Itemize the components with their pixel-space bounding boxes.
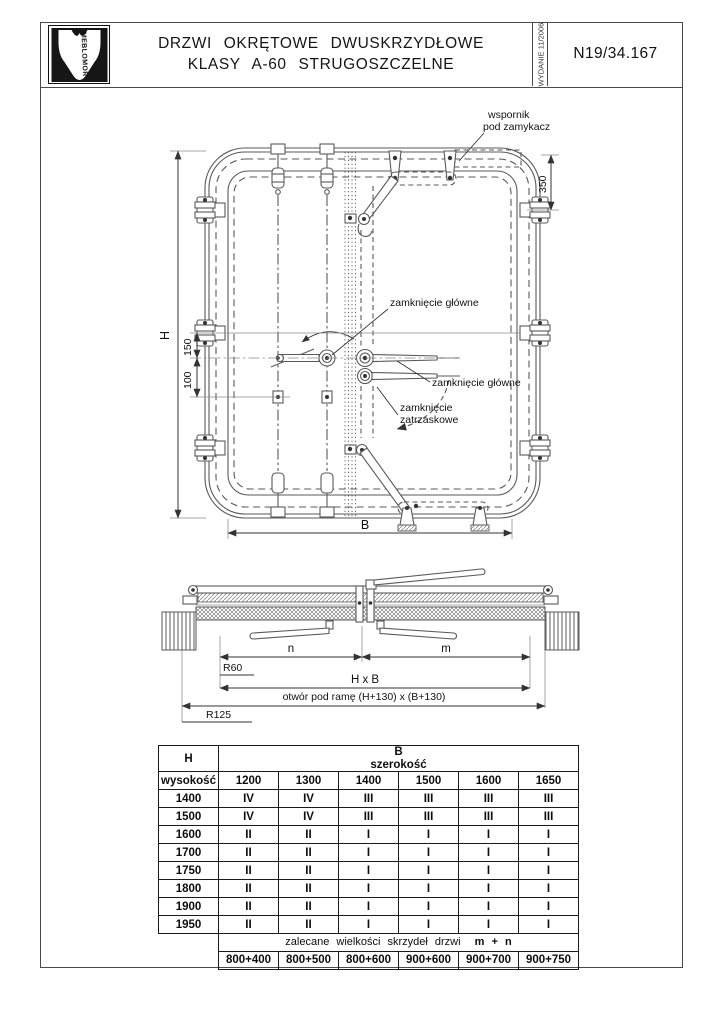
table-cell: I [339, 880, 399, 898]
technical-drawing: H 150 100 350 B wspornik pod zamykacz [40, 88, 684, 746]
table-cell: II [219, 916, 279, 934]
title-line-2: KLASY A-60 STRUGOSZCZELNE [112, 54, 530, 75]
table-cell: I [399, 898, 459, 916]
table-cell: I [519, 826, 579, 844]
dim-n-label: n [288, 643, 294, 655]
table-cell: II [219, 826, 279, 844]
table-cell: III [459, 808, 519, 826]
table-header-b-label: B [219, 746, 578, 759]
table-header-h-sub: wysokość [159, 772, 219, 790]
table-cell: II [279, 880, 339, 898]
table-cell: I [399, 826, 459, 844]
latch-lock-label-1: zamknięcie [400, 402, 453, 414]
table-header-b-sub: szerokość [219, 759, 578, 771]
table-cell: I [399, 844, 459, 862]
table-cell: IV [279, 808, 339, 826]
table-cell: III [519, 790, 579, 808]
table-cell: I [519, 880, 579, 898]
latch-lock-label-2: zatrzaskowe [400, 414, 459, 426]
front-view-dimensions: H 150 100 350 B wspornik pod zamykacz [158, 109, 559, 539]
table-row-height: 1700 [159, 844, 219, 862]
table-row-height: 1950 [159, 916, 219, 934]
table-cell: I [519, 862, 579, 880]
table-cell: I [459, 916, 519, 934]
table-row-height: 1600 [159, 826, 219, 844]
table-footer-note: zalecane wielkości skrzydeł drzwi m + n [219, 934, 579, 952]
table-cell: II [279, 862, 339, 880]
dim-150-label: 150 [182, 338, 194, 356]
locking-rods [271, 144, 334, 517]
catalog-page: { "header": { "logo_text": "MEBLOMOR", "… [0, 0, 724, 1024]
table-width-value: 1600 [459, 772, 519, 790]
logo-graphic: MEBLOMOR [51, 28, 108, 82]
table-cell: II [279, 916, 339, 934]
table-cell: III [339, 808, 399, 826]
bracket-label-2: pod zamykacz [483, 121, 550, 133]
table-cell: II [279, 826, 339, 844]
title-line-1: DRZWI OKRĘTOWE DWUSKRZYDŁOWE [112, 33, 530, 54]
table-row-height: 1400 [159, 790, 219, 808]
table-cell: I [399, 862, 459, 880]
dim-H-label: H [158, 331, 172, 340]
table-row-height: 1800 [159, 880, 219, 898]
table-width-value: 1400 [339, 772, 399, 790]
dim-hxb-label: H x B [351, 674, 379, 686]
bracket-label-1: wspornik [487, 109, 530, 121]
table-cell: I [399, 916, 459, 934]
table-cell: III [399, 808, 459, 826]
table-cell: II [219, 880, 279, 898]
table-width-value: 1500 [399, 772, 459, 790]
table-cell: II [279, 844, 339, 862]
table-cell: I [339, 898, 399, 916]
edition-strip: WYDANIE 11/2006 [532, 22, 548, 86]
table-cell: IV [219, 790, 279, 808]
table-empty-cell [159, 951, 219, 969]
table-cell: I [459, 880, 519, 898]
dim-350-label: 350 [537, 175, 549, 193]
opening-label: otwór pod ramę (H+130) x (B+130) [283, 691, 446, 703]
table-leaf-size-cell: 800+500 [279, 951, 339, 969]
table-header-h: H [159, 746, 219, 772]
table-leaf-size-cell: 800+600 [339, 951, 399, 969]
top-closer-mechanism [345, 150, 521, 346]
table-cell: I [459, 826, 519, 844]
main-lock-label-right: zamknięcie główne [432, 377, 521, 389]
document-number: N19/34.167 [548, 22, 683, 86]
table-cell: IV [279, 790, 339, 808]
table-cell: I [399, 880, 459, 898]
table-cell: I [519, 898, 579, 916]
dim-m-label: m [441, 643, 451, 655]
main-lock-label-top: zamknięcie główne [390, 297, 479, 309]
dim-100-label: 100 [182, 371, 194, 389]
table-cell: II [219, 862, 279, 880]
radius-r60-label: R60 [223, 662, 242, 674]
table-cell: I [519, 916, 579, 934]
table-cell: I [459, 898, 519, 916]
table-width-value: 1650 [519, 772, 579, 790]
table-leaf-size-cell: 900+700 [459, 951, 519, 969]
table-cell: III [339, 790, 399, 808]
title-block: MEBLOMOR DRZWI OKRĘTOWE DWUSKRZYDŁOWE KL… [40, 22, 683, 88]
table-cell: I [339, 826, 399, 844]
size-table: H B szerokość wysokość 1200 1300 1400 15… [158, 745, 579, 970]
table-cell: II [279, 898, 339, 916]
radius-r125-label: R125 [206, 709, 231, 721]
table-cell: III [399, 790, 459, 808]
table-cell: I [339, 916, 399, 934]
manufacturer-logo: MEBLOMOR [48, 25, 110, 84]
table-empty-cell [159, 934, 219, 952]
table-leaf-size-cell: 900+600 [399, 951, 459, 969]
table-row-height: 1900 [159, 898, 219, 916]
table-leaf-size-cell: 900+750 [519, 951, 579, 969]
table-cell: I [519, 844, 579, 862]
section-dimensions: n m R60 H x B otwór pod ramę (H+130) x (… [182, 626, 545, 722]
table-width-value: 1300 [279, 772, 339, 790]
table-cell: III [459, 790, 519, 808]
table-cell: I [459, 844, 519, 862]
table-cell: I [459, 862, 519, 880]
door-front-view: H 150 100 350 B wspornik pod zamykacz [158, 109, 559, 539]
table-row-height: 1500 [159, 808, 219, 826]
table-cell: III [519, 808, 579, 826]
table-row-height: 1750 [159, 862, 219, 880]
dim-B-label: B [361, 518, 369, 532]
table-cell: IV [219, 808, 279, 826]
table-cell: I [339, 844, 399, 862]
edition-label: WYDANIE 11/2006 [537, 21, 546, 89]
table-cell: I [339, 862, 399, 880]
table-header-b: B szerokość [219, 746, 579, 772]
page-title: DRZWI OKRĘTOWE DWUSKRZYDŁOWE KLASY A-60 … [112, 22, 530, 86]
table-leaf-size-cell: 800+400 [219, 951, 279, 969]
table-cell: II [219, 844, 279, 862]
door-section-view: n m R60 H x B otwór pod ramę (H+130) x (… [162, 569, 579, 722]
table-width-value: 1200 [219, 772, 279, 790]
table-cell: II [219, 898, 279, 916]
